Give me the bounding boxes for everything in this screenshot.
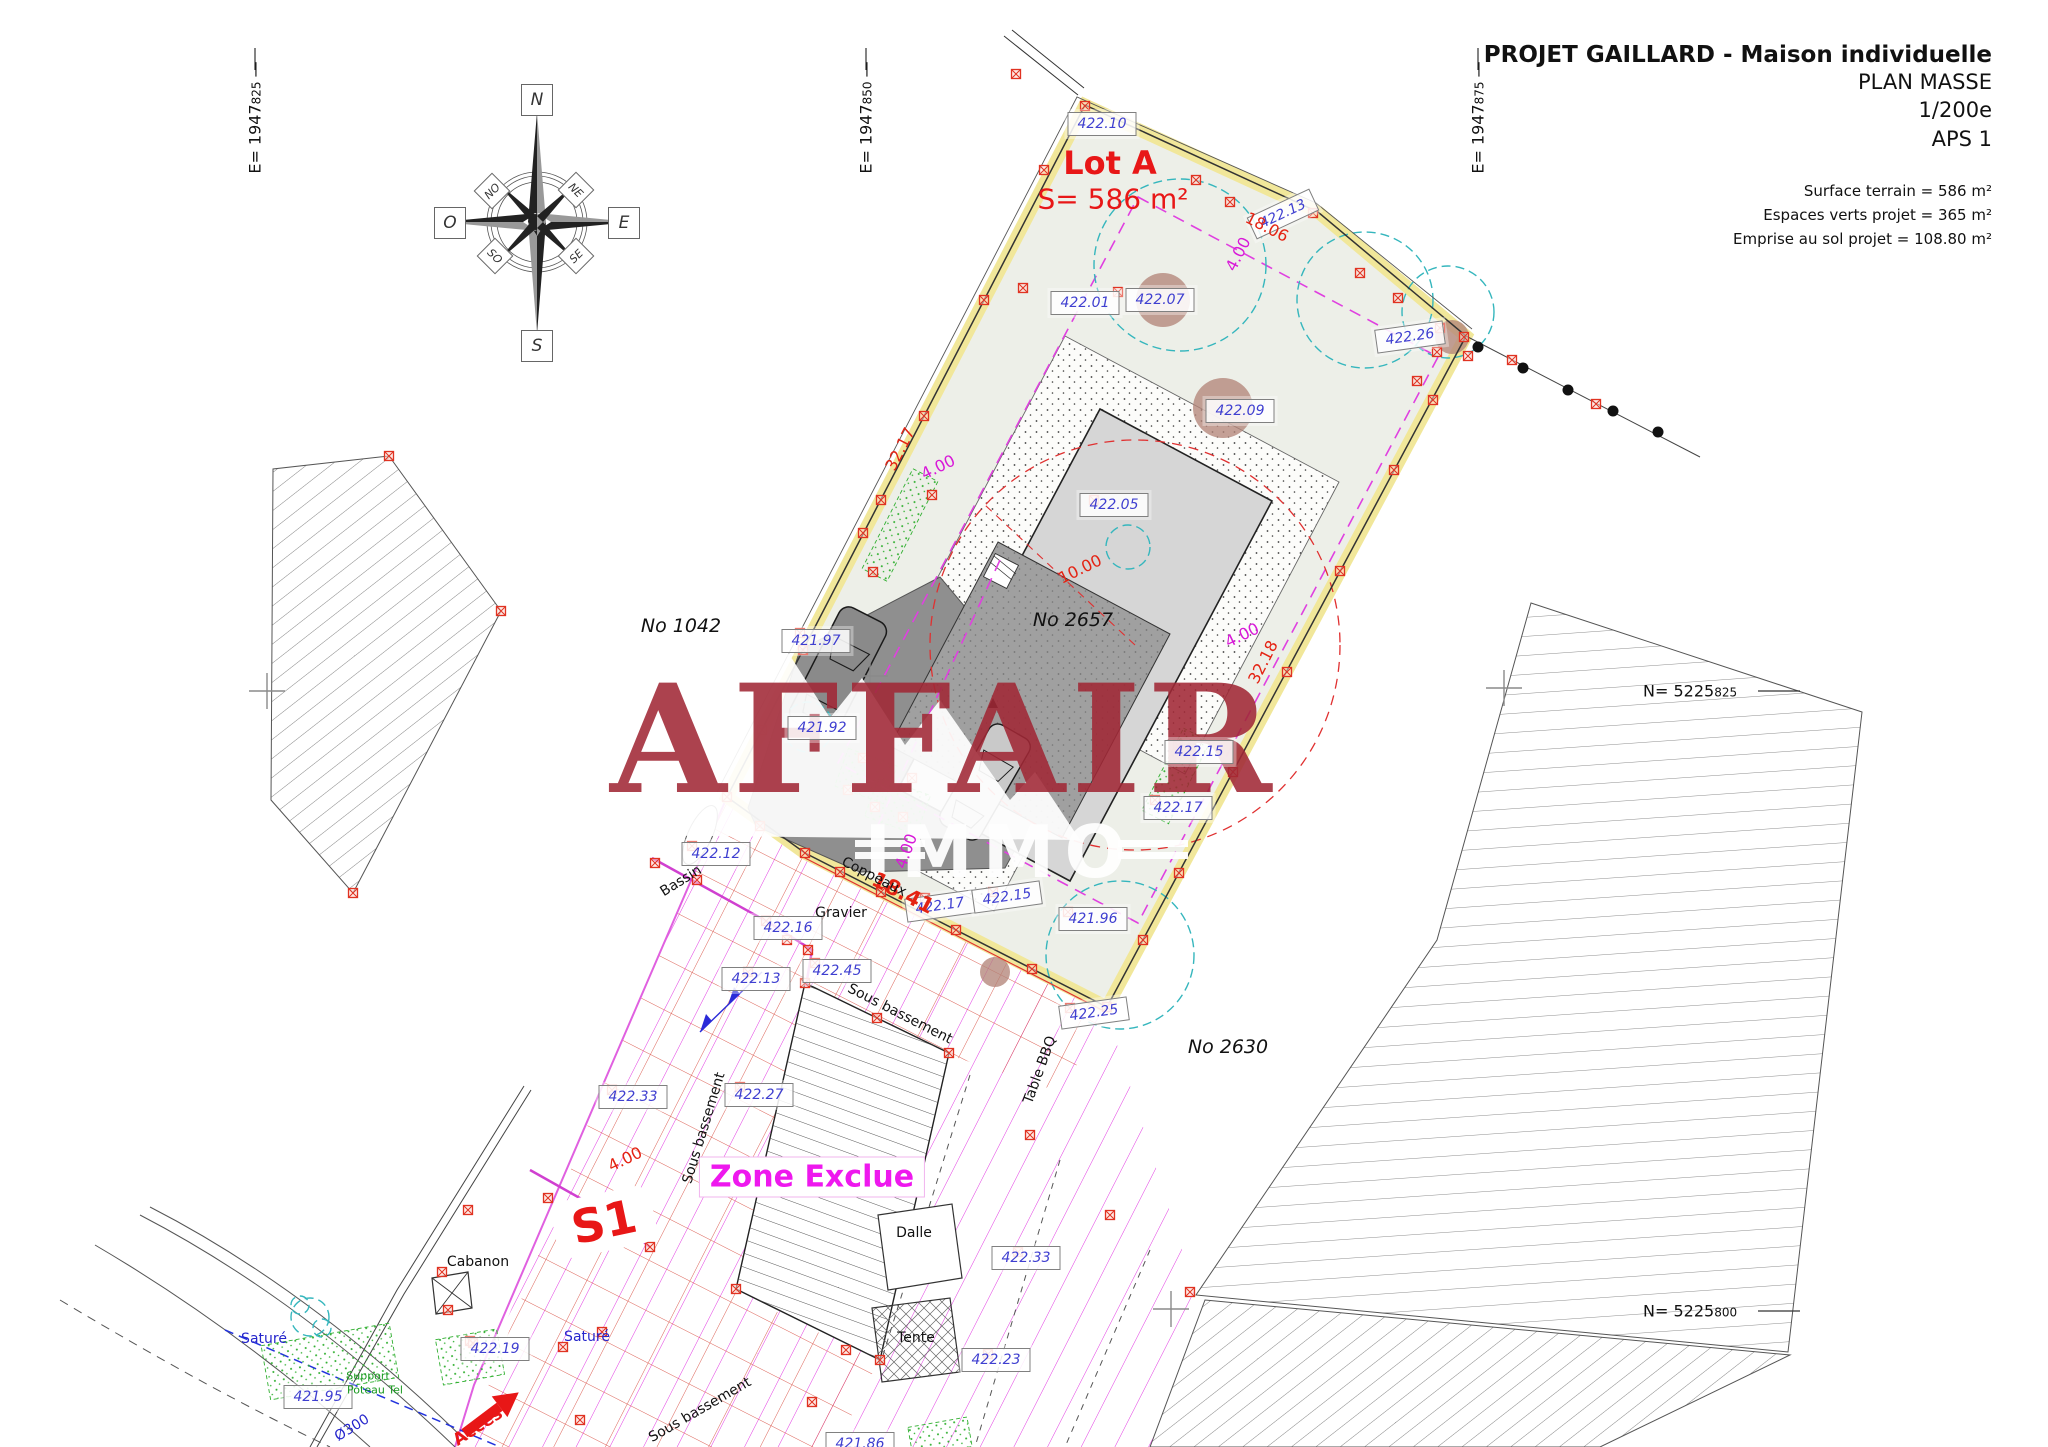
elevation-label: 422.33 xyxy=(992,1246,1061,1270)
espaces-verts: Espaces verts projet = 365 m² xyxy=(1484,203,1992,227)
elevation-label: 422.19 xyxy=(461,1337,530,1361)
elevation-label: 421.96 xyxy=(1059,907,1128,931)
site-plan-canvas: AFFAIR IMMO PROJET GAILLARD - Maison ind… xyxy=(0,0,2048,1447)
parcel-number-label: No 1042 xyxy=(641,615,721,637)
grid-easting-label: E= 1947825 — xyxy=(246,62,265,173)
elevation-label: 421.95 xyxy=(284,1385,353,1409)
lot-name-label: Lot A xyxy=(1063,144,1157,182)
project-title: PROJET GAILLARD - Maison individuelle xyxy=(1484,42,1992,68)
elevation-label: 422.45 xyxy=(803,959,872,983)
title-block: PROJET GAILLARD - Maison individuelle PL… xyxy=(1484,42,1992,251)
parcel-number-label: No 2657 xyxy=(1033,609,1113,631)
plan-scale: 1/200e xyxy=(1484,96,1992,124)
elevation-label: 422.01 xyxy=(1051,291,1120,315)
elevation-label: 421.92 xyxy=(788,716,857,740)
zone-exclue-label: Zone Exclue xyxy=(699,1157,925,1198)
site-feature-label: Tente xyxy=(897,1330,935,1346)
compass-north-label: N xyxy=(521,84,553,116)
elevation-label: 422.15 xyxy=(1165,740,1234,764)
parcel-number-label: No 2630 xyxy=(1188,1036,1268,1058)
grid-easting-label: E= 1947850 — xyxy=(857,62,876,173)
site-feature-label: Dalle xyxy=(896,1225,932,1241)
watermark-bar xyxy=(1118,840,1188,847)
elevation-label: 422.05 xyxy=(1080,493,1149,517)
elevation-label: 422.23 xyxy=(962,1348,1031,1372)
elevation-label: 422.33 xyxy=(599,1085,668,1109)
elevation-label: 422.16 xyxy=(754,916,823,940)
compass-south-label: S xyxy=(521,330,553,362)
grid-northing-label: N= 5225825 xyxy=(1643,682,1737,701)
elevation-label: 422.10 xyxy=(1068,112,1137,136)
utility-label: Poteau Tel xyxy=(347,1384,403,1397)
watermark-bar xyxy=(1118,852,1188,859)
elevation-label: 422.07 xyxy=(1126,288,1195,312)
surface-terrain: Surface terrain = 586 m² xyxy=(1484,179,1992,203)
utility-label: Support xyxy=(346,1370,389,1383)
site-feature-label: Gravier xyxy=(815,905,867,921)
site-feature-label: Cabanon xyxy=(447,1254,509,1270)
elevation-label: 422.13 xyxy=(722,967,791,991)
compass-east-label: E xyxy=(608,207,640,239)
elevation-label: 422.12 xyxy=(682,842,751,866)
lot-area-label: S= 586 m² xyxy=(1038,183,1189,216)
emprise-sol: Emprise au sol projet = 108.80 m² xyxy=(1484,227,1992,251)
elevation-label: 422.27 xyxy=(725,1083,794,1107)
elevation-label: 422.17 xyxy=(1144,796,1213,820)
grid-northing-label: N= 5225800 xyxy=(1643,1302,1737,1321)
elevation-label: 421.86 xyxy=(826,1432,895,1447)
elevation-label: 422.09 xyxy=(1206,399,1275,423)
elevation-label: 421.97 xyxy=(782,629,851,653)
plan-type: PLAN MASSE xyxy=(1484,68,1992,96)
compass-west-label: O xyxy=(434,207,466,239)
site-feature-label: Saturé xyxy=(564,1329,610,1345)
site-feature-label: Saturé xyxy=(241,1331,287,1347)
plan-phase: APS 1 xyxy=(1484,125,1992,153)
